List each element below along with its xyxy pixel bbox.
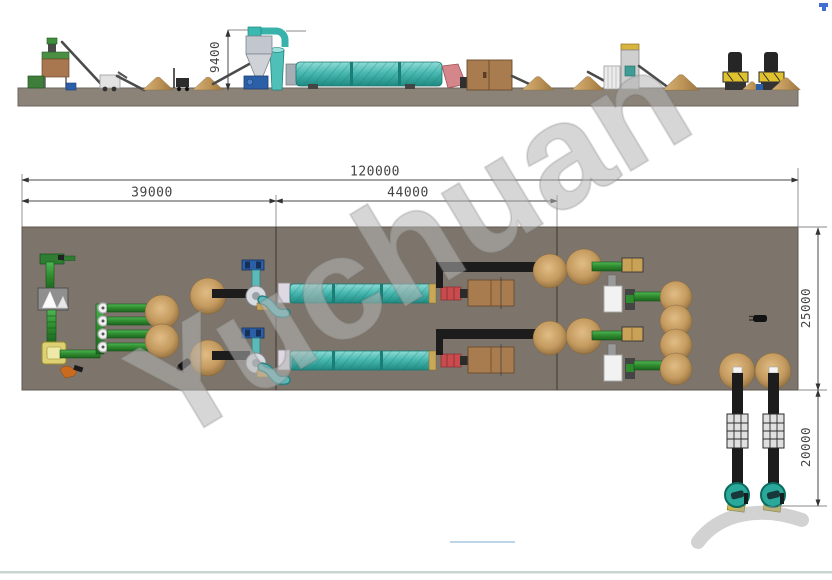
output-conveyor-1 — [436, 262, 540, 272]
feed-belt-conveyor-1 — [212, 289, 250, 298]
inclined-conveyor-6 — [639, 66, 669, 88]
packing-machine — [604, 286, 622, 312]
feed-belt-conveyor-2 — [212, 351, 250, 360]
hot-air-furnace-elevation — [467, 60, 512, 90]
drum-inlet-red — [441, 287, 461, 300]
hot-air-furnace-plan-2 — [468, 344, 514, 376]
material-pile-plan — [533, 254, 567, 288]
material-pile-plan — [533, 321, 567, 355]
drum-inlet-red — [441, 354, 461, 367]
dimension-label-overall: 120000 — [350, 165, 400, 180]
pellet-press-1 — [723, 52, 748, 90]
dimension-label-left: 39000 — [131, 186, 173, 201]
dimension-label-middle: 44000 — [387, 186, 429, 201]
batching-hopper — [42, 59, 69, 77]
hot-air-furnace-plan-1 — [468, 277, 514, 309]
base-machine — [28, 76, 44, 88]
cooling-cage — [763, 414, 784, 448]
material-pile — [143, 77, 173, 90]
drawing-svg: 9400 — [0, 0, 832, 580]
material-pile-plan — [145, 324, 179, 358]
material-pile — [663, 75, 700, 91]
rotary-drum-dryer-elevation — [286, 62, 442, 89]
page-bottom-rule — [0, 571, 832, 574]
elevation-ground — [18, 88, 798, 106]
watermark-swirl — [698, 513, 802, 542]
material-pile-plan — [660, 353, 692, 385]
crusher-box — [38, 288, 68, 310]
drum-inlet-elbow — [442, 64, 470, 88]
elevation-view: 9400 — [18, 3, 828, 106]
exhaust-stack — [270, 50, 284, 90]
screening-machine — [622, 258, 643, 272]
dimension-label-cooling: 20000 — [798, 427, 813, 467]
cooling-cage — [727, 414, 748, 448]
output-conveyor-2 — [436, 329, 540, 339]
pump-blue — [66, 83, 76, 90]
corner-mark-icon — [819, 3, 828, 11]
cyclone-separator — [244, 27, 285, 90]
bag-filter — [604, 66, 620, 89]
plan-dimensions-top: 120000 39000 44000 — [22, 165, 798, 233]
material-pile — [193, 77, 223, 90]
dimension-label-9400: 9400 — [207, 41, 222, 73]
plan-view — [22, 227, 798, 390]
dimension-label-depth: 25000 — [798, 288, 813, 328]
granulation-tower — [621, 44, 639, 89]
batching-station — [28, 38, 101, 90]
screening-machine — [622, 327, 643, 341]
factory-layout-drawing: 9400 — [0, 0, 832, 580]
packing-machine — [604, 355, 622, 381]
